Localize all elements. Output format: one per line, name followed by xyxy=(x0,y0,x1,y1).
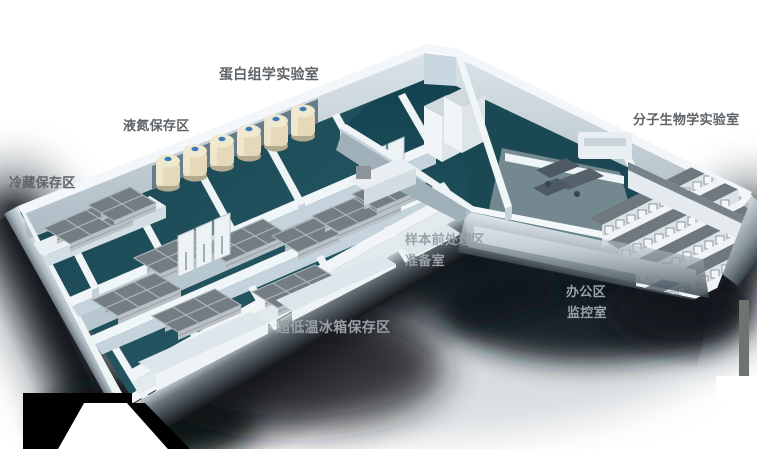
svg-text:监控室: 监控室 xyxy=(567,305,607,320)
svg-text:蛋白组学实验室: 蛋白组学实验室 xyxy=(219,66,319,82)
svg-text:准备室: 准备室 xyxy=(405,253,445,268)
svg-text:液氮保存区: 液氮保存区 xyxy=(123,118,190,133)
svg-text:分子生物学实验室: 分子生物学实验室 xyxy=(633,112,739,127)
svg-text:样本前处理区: 样本前处理区 xyxy=(405,232,485,247)
svg-text:超低温冰箱保存区: 超低温冰箱保存区 xyxy=(275,319,390,335)
svg-text:冷藏保存区: 冷藏保存区 xyxy=(9,175,76,190)
svg-text:办公区: 办公区 xyxy=(566,284,606,299)
